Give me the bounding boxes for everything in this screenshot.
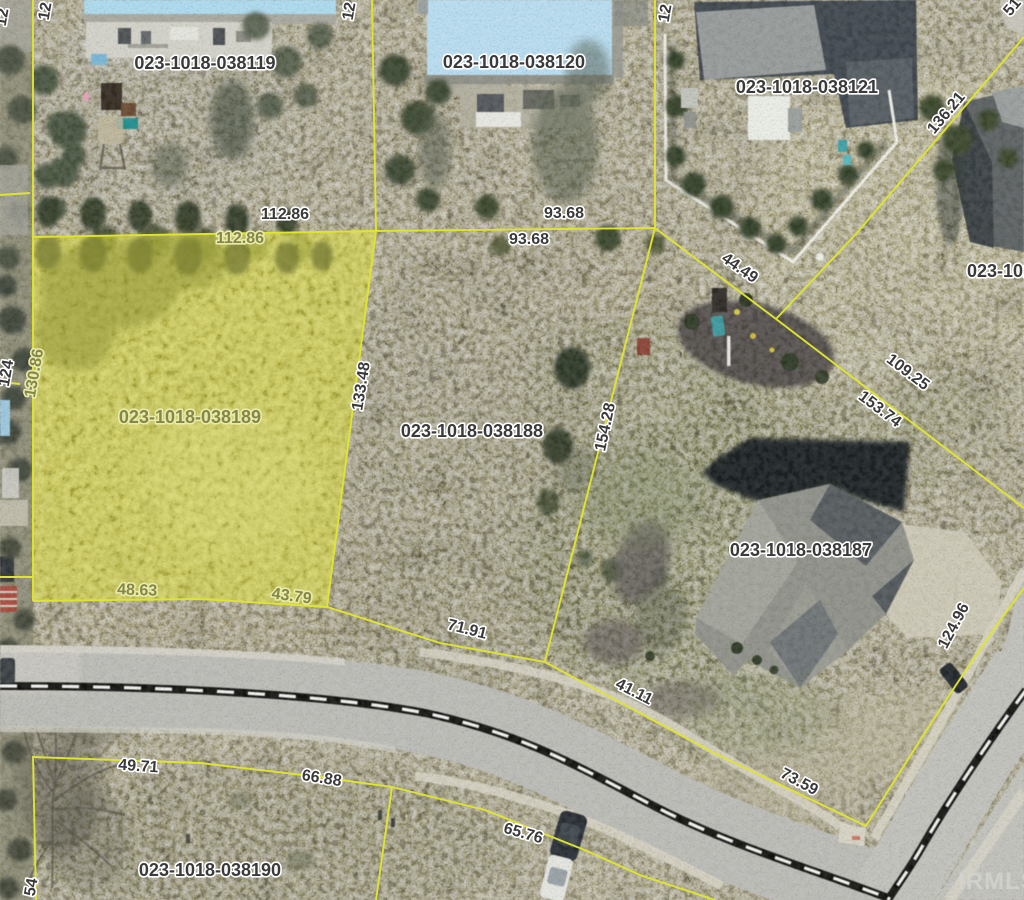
svg-text:112.86: 112.86 — [261, 206, 309, 223]
svg-text:12: 12 — [656, 3, 676, 24]
svg-text:93.68: 93.68 — [544, 205, 584, 222]
svg-text:12: 12 — [340, 1, 360, 22]
svg-text:023-101: 023-101 — [967, 261, 1024, 281]
svg-text:023-1018-038190: 023-1018-038190 — [139, 860, 281, 880]
svg-text:023-1018-038121: 023-1018-038121 — [736, 77, 878, 97]
svg-text:48.63: 48.63 — [117, 581, 158, 599]
svg-text:12: 12 — [36, 1, 56, 22]
svg-text:IRMLS: IRMLS — [958, 868, 1024, 895]
svg-text:023-1018-038189: 023-1018-038189 — [119, 407, 261, 427]
svg-text:023-1018-038119: 023-1018-038119 — [134, 53, 275, 73]
svg-text:93.68: 93.68 — [509, 231, 549, 248]
svg-text:49.71: 49.71 — [118, 757, 159, 777]
svg-text:54: 54 — [22, 877, 42, 898]
svg-text:023-1018-038120: 023-1018-038120 — [443, 52, 585, 72]
svg-text:023-1018-038188: 023-1018-038188 — [401, 421, 543, 441]
svg-text:023-1018-038187: 023-1018-038187 — [730, 540, 872, 560]
svg-text:112.86: 112.86 — [216, 230, 264, 247]
